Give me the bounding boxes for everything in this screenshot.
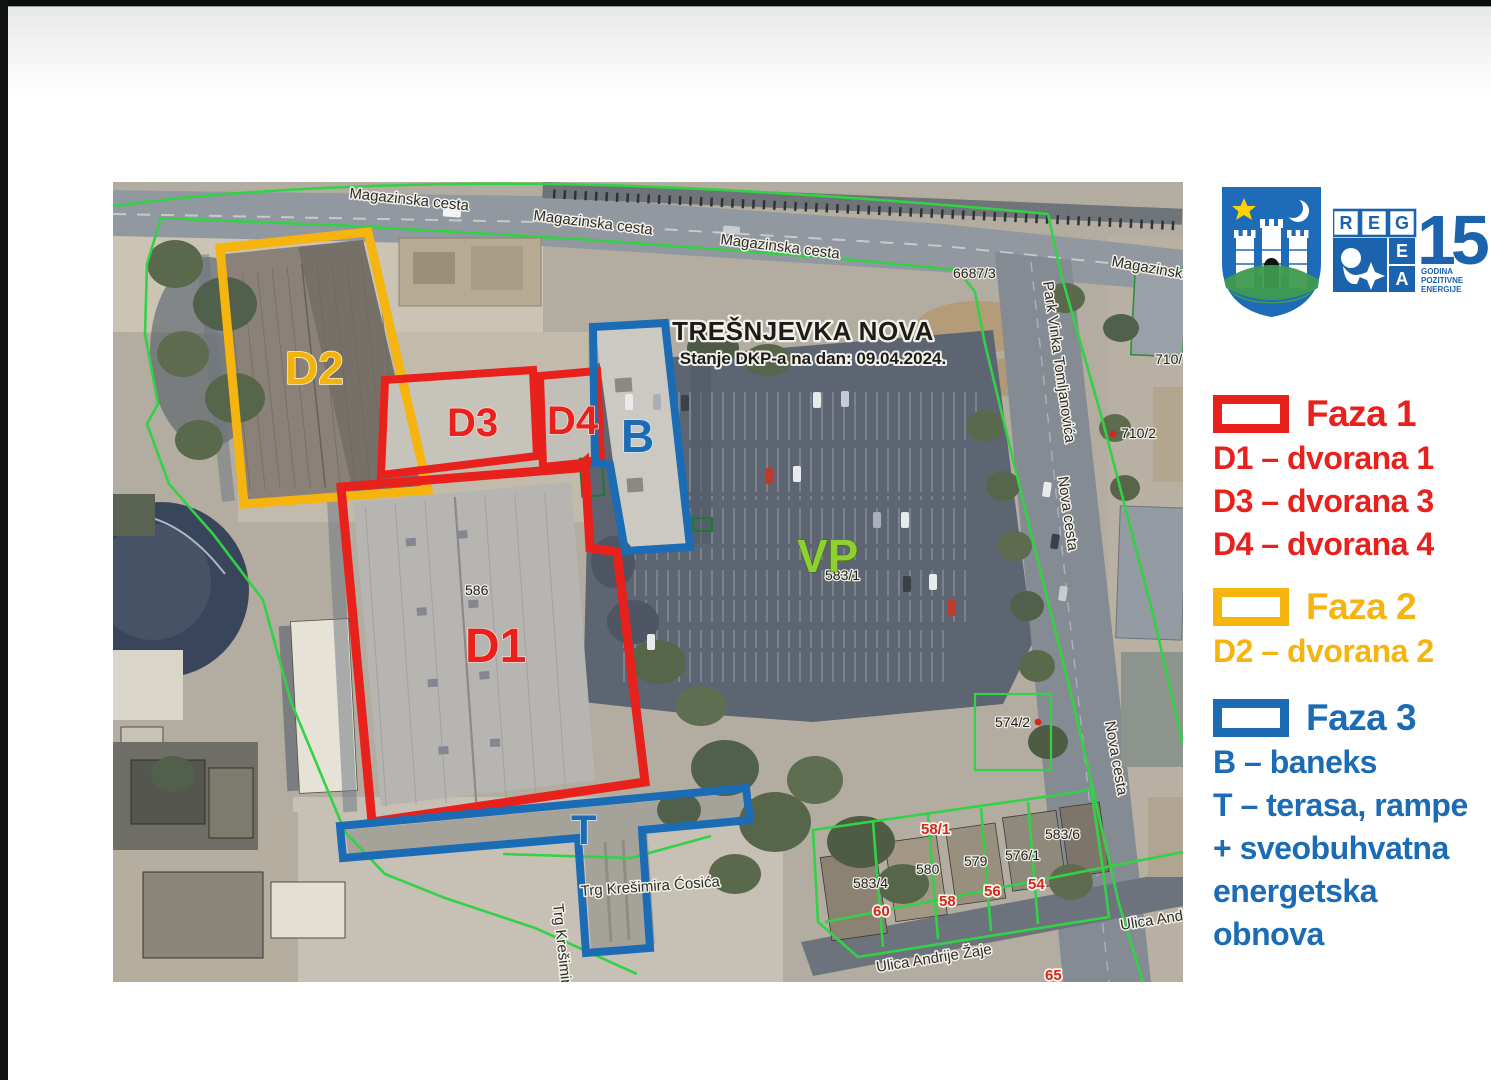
regea-letter-a: A bbox=[1396, 269, 1409, 289]
legend-item-t: T – terasa, rampe bbox=[1213, 784, 1491, 827]
window-top-border bbox=[0, 0, 1491, 7]
parcel-6687-3: 6687/3 bbox=[953, 265, 996, 281]
area-label-d4: D4 bbox=[547, 399, 599, 443]
legend-phase1-header: Faza 1 bbox=[1213, 391, 1491, 437]
zagreb-coat-of-arms-logo bbox=[1218, 184, 1325, 324]
house-number-65: 65 bbox=[1045, 967, 1062, 982]
area-label-t: T bbox=[571, 806, 597, 853]
area-label-d2: D2 bbox=[285, 342, 344, 394]
legend-item-d1: D1 – dvorana 1 bbox=[1213, 437, 1491, 480]
map-title: TREŠNJEVKA NOVA bbox=[672, 316, 934, 346]
area-label-d1: D1 bbox=[465, 620, 526, 673]
house-number-54: 54 bbox=[1028, 876, 1045, 893]
house-number-60: 60 bbox=[873, 903, 890, 920]
parcel-580: 580 bbox=[916, 861, 940, 877]
map-subtitle: Stanje DKP-a na dan: 09.04.2024. bbox=[680, 349, 946, 368]
regea-tagline-1: GODINA bbox=[1421, 267, 1453, 276]
satellite-map: Magazinska cesta Magazinska cesta Magazi… bbox=[113, 182, 1183, 982]
regea-logo: R E G E A 15 GODINA POZITIVNE ENERGIJE bbox=[1333, 198, 1489, 315]
slide-page: Magazinska cesta Magazinska cesta Magazi… bbox=[0, 0, 1491, 1080]
phase1-swatch bbox=[1213, 395, 1289, 433]
parcel-579: 579 bbox=[964, 853, 988, 869]
legend-item-obnova: obnova bbox=[1213, 913, 1491, 956]
regea-letter-r: R bbox=[1340, 213, 1353, 233]
house-number-56: 56 bbox=[984, 883, 1001, 900]
legend-item-d4: D4 – dvorana 4 bbox=[1213, 523, 1491, 566]
legend-item-d3: D3 – dvorana 3 bbox=[1213, 480, 1491, 523]
legend-item-sveobuhvatna: + sveobuhvatna bbox=[1213, 827, 1491, 870]
map-base-layer: Magazinska cesta Magazinska cesta Magazi… bbox=[113, 182, 1183, 982]
top-gradient bbox=[8, 7, 1491, 97]
phase2-swatch bbox=[1213, 588, 1289, 626]
legend-item-b: B – baneks bbox=[1213, 741, 1491, 784]
parcel-576-1: 576/1 bbox=[1005, 847, 1040, 863]
regea-face-square bbox=[1333, 238, 1387, 292]
area-label-vp: VP bbox=[797, 530, 858, 582]
parcel-586: 586 bbox=[465, 582, 489, 598]
legend-item-d2: D2 – dvorana 2 bbox=[1213, 630, 1491, 673]
parcel-710-2: 710/2 bbox=[1121, 425, 1156, 441]
phase3-swatch bbox=[1213, 699, 1289, 737]
phase3-title: Faza 3 bbox=[1306, 697, 1416, 739]
parcel-583-6: 583/6 bbox=[1045, 826, 1080, 842]
house-number-58: 58 bbox=[939, 893, 956, 910]
area-label-b: B bbox=[621, 410, 654, 462]
legend-phase3-header: Faza 3 bbox=[1213, 695, 1491, 741]
legend-item-energetska: energetska bbox=[1213, 870, 1491, 913]
regea-letter-e2: E bbox=[1396, 241, 1408, 261]
phase1-title: Faza 1 bbox=[1306, 393, 1416, 435]
parcel-574-2: 574/2 bbox=[995, 714, 1030, 730]
window-left-border bbox=[0, 0, 8, 1080]
parcel-58-1: 58/1 bbox=[921, 821, 950, 838]
legend-phase2-header: Faza 2 bbox=[1213, 584, 1491, 630]
parcel-710: 710/ bbox=[1155, 351, 1182, 367]
parcel-583-4: 583/4 bbox=[853, 875, 888, 891]
phase2-title: Faza 2 bbox=[1306, 586, 1416, 628]
regea-tagline-2: POZITIVNE bbox=[1421, 276, 1464, 285]
regea-tagline-3: ENERGIJE bbox=[1421, 285, 1462, 294]
map-legend: Faza 1 D1 – dvorana 1 D3 – dvorana 3 D4 … bbox=[1213, 391, 1491, 956]
regea-letter-e1: E bbox=[1368, 213, 1380, 233]
regea-letter-g: G bbox=[1395, 213, 1409, 233]
area-label-d3: D3 bbox=[447, 401, 498, 445]
